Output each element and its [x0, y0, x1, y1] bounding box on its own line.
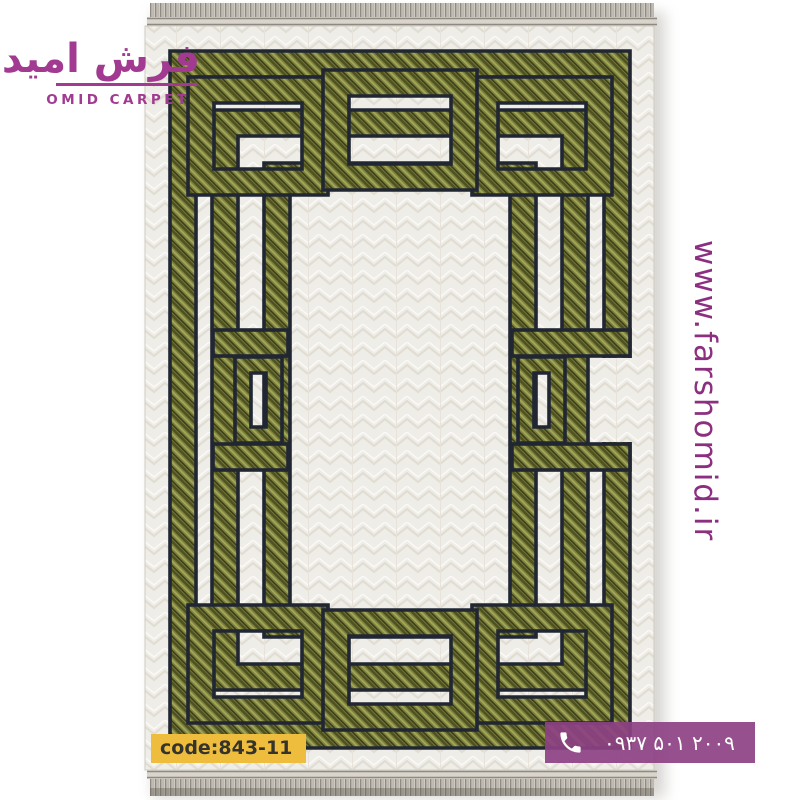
site-url-vertical: www.farshomid.ir — [687, 240, 723, 542]
page-background: فرش امید OMID CARPET www.farshomid.ir co… — [0, 0, 800, 800]
phone-number: ۰۹۳۷ ۵۰۱ ۲۰۰۹ — [594, 731, 745, 755]
carpet-bottom-fringe — [147, 770, 657, 796]
brand-logo-latin: OMID CARPET — [36, 92, 200, 108]
brand-logo: فرش امید OMID CARPET — [36, 36, 200, 108]
phone-icon — [557, 729, 584, 756]
carpet-photo — [0, 0, 800, 800]
carpet-top-fringe — [147, 3, 657, 26]
brand-logo-underline — [56, 83, 198, 86]
brand-logo-farsi: فرش امید — [36, 36, 200, 82]
product-code-badge: code:843-11 — [151, 734, 306, 763]
phone-contact-bar: ۰۹۳۷ ۵۰۱ ۲۰۰۹ — [545, 722, 755, 763]
